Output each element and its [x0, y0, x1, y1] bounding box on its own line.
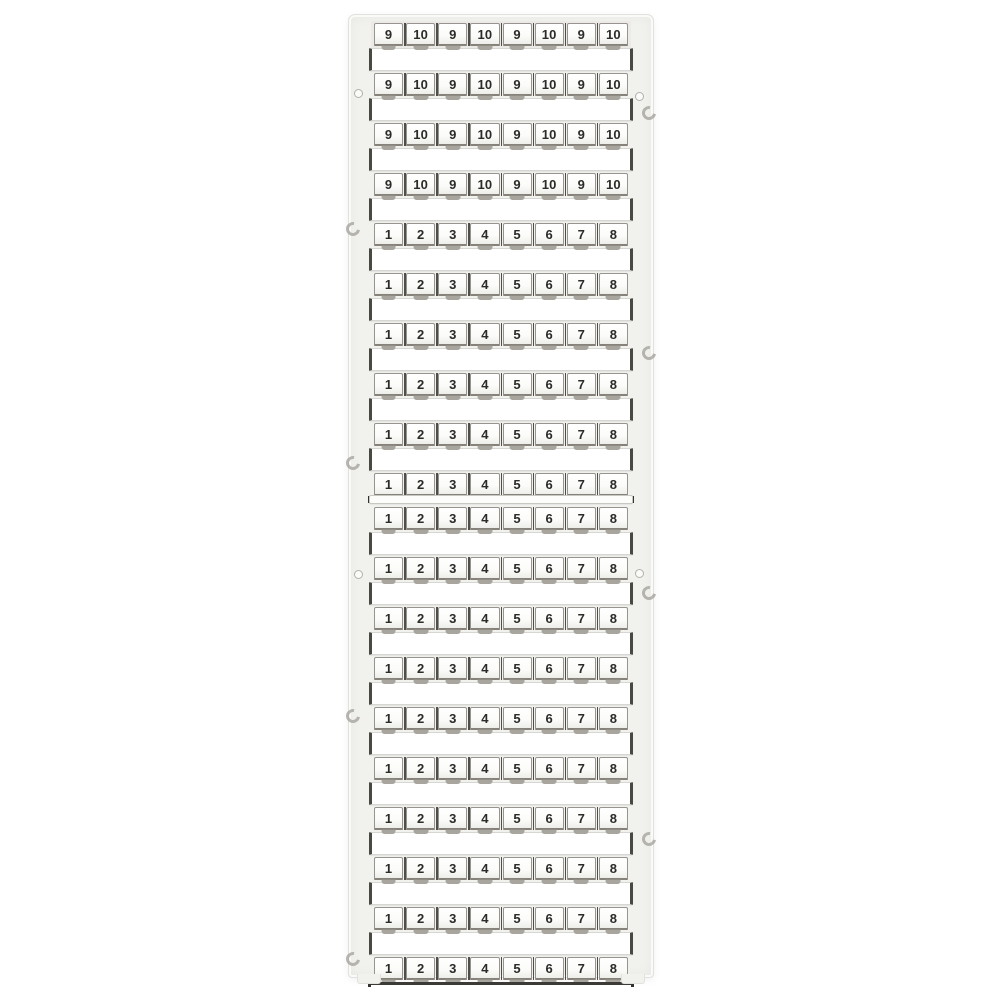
marker-tag: 3 [438, 857, 467, 880]
marker-tag: 5 [503, 323, 532, 346]
marker-tag: 7 [567, 507, 596, 530]
marker-tag: 10 [470, 123, 499, 146]
marker-row: 12345678 [374, 323, 628, 346]
blank-strip [369, 532, 633, 555]
marker-row: 12345678 [374, 907, 628, 930]
marker-tag: 4 [470, 757, 499, 780]
marker-tag: 4 [470, 423, 499, 446]
marker-tag: 5 [503, 957, 532, 980]
marker-tag: 4 [470, 507, 499, 530]
marker-tag: 5 [503, 373, 532, 396]
marker-tag: 8 [599, 507, 628, 530]
marker-tag: 3 [438, 607, 467, 630]
panel-foot-right [621, 974, 645, 984]
marker-tag: 10 [535, 73, 564, 96]
marker-tag: 4 [470, 223, 499, 246]
marker-tag: 10 [406, 173, 435, 196]
marker-tag: 4 [470, 273, 499, 296]
marker-tag: 9 [374, 23, 403, 46]
marker-row: 910910910910 [374, 73, 628, 96]
marker-row: 12345678 [374, 607, 628, 630]
marker-tag: 7 [567, 957, 596, 980]
marker-tag: 7 [567, 323, 596, 346]
marker-tag: 2 [406, 607, 435, 630]
marker-tag: 8 [599, 423, 628, 446]
marker-tag: 3 [438, 473, 467, 496]
marker-row: 12345678 [374, 657, 628, 680]
marker-tag: 6 [535, 323, 564, 346]
marker-tag: 1 [374, 757, 403, 780]
marker-row: 12345678 [374, 373, 628, 396]
marker-tag: 8 [599, 273, 628, 296]
marker-card-bottom: 1234567812345678123456781234567812345678… [369, 495, 633, 985]
marker-panel: 9109109109109109109109109109109109109109… [348, 14, 654, 978]
marker-tag: 5 [503, 707, 532, 730]
marker-tag: 7 [567, 707, 596, 730]
marker-row: 12345678 [374, 807, 628, 830]
marker-tag: 3 [438, 323, 467, 346]
blank-strip [369, 398, 633, 421]
marker-tag: 2 [406, 223, 435, 246]
marker-tag: 8 [599, 857, 628, 880]
marker-row: 12345678 [374, 423, 628, 446]
clip-mark [343, 949, 362, 968]
card-edge-line [369, 982, 633, 985]
marker-tag: 9 [503, 73, 532, 96]
blank-strip [369, 148, 633, 171]
marker-tag: 1 [374, 473, 403, 496]
blank-strip [369, 448, 633, 471]
marker-tag: 7 [567, 657, 596, 680]
marker-card-top: 9109109109109109109109109109109109109109… [369, 23, 633, 501]
marker-row: 12345678 [374, 957, 628, 980]
marker-tag: 10 [470, 73, 499, 96]
marker-tag: 2 [406, 473, 435, 496]
marker-tag: 8 [599, 907, 628, 930]
marker-tag: 2 [406, 757, 435, 780]
clip-mark [639, 583, 658, 602]
marker-tag: 10 [470, 23, 499, 46]
marker-tag: 7 [567, 373, 596, 396]
marker-tag: 1 [374, 857, 403, 880]
marker-tag: 10 [406, 123, 435, 146]
marker-tag: 2 [406, 707, 435, 730]
marker-tag: 7 [567, 757, 596, 780]
marker-tag: 1 [374, 373, 403, 396]
marker-tag: 5 [503, 907, 532, 930]
marker-tag: 2 [406, 907, 435, 930]
marker-tag: 5 [503, 473, 532, 496]
marker-tag: 5 [503, 507, 532, 530]
marker-tag: 8 [599, 557, 628, 580]
marker-tag: 10 [535, 123, 564, 146]
marker-tag: 6 [535, 607, 564, 630]
marker-tag: 10 [599, 123, 628, 146]
marker-tag: 6 [535, 223, 564, 246]
marker-tag: 3 [438, 507, 467, 530]
marker-tag: 8 [599, 807, 628, 830]
marker-tag: 8 [599, 757, 628, 780]
marker-row: 12345678 [374, 507, 628, 530]
clip-mark [639, 829, 658, 848]
marker-tag: 1 [374, 807, 403, 830]
marker-tag: 8 [599, 707, 628, 730]
marker-tag: 9 [374, 123, 403, 146]
marker-tag: 5 [503, 657, 532, 680]
marker-tag: 9 [374, 173, 403, 196]
marker-tag: 8 [599, 373, 628, 396]
blank-strip [369, 882, 633, 905]
marker-row: 12345678 [374, 857, 628, 880]
mounting-hole [635, 569, 644, 578]
blank-strip [369, 248, 633, 271]
marker-row: 910910910910 [374, 173, 628, 196]
marker-tag: 3 [438, 423, 467, 446]
marker-tag: 2 [406, 323, 435, 346]
marker-tag: 6 [535, 707, 564, 730]
marker-tag: 3 [438, 757, 467, 780]
marker-tag: 6 [535, 807, 564, 830]
marker-tag: 9 [374, 73, 403, 96]
blank-strip [369, 48, 633, 71]
marker-tag: 4 [470, 857, 499, 880]
marker-tag: 4 [470, 473, 499, 496]
marker-tag: 3 [438, 957, 467, 980]
marker-tag: 7 [567, 557, 596, 580]
marker-tag: 9 [567, 123, 596, 146]
mounting-hole [354, 570, 363, 579]
marker-tag: 5 [503, 557, 532, 580]
marker-tag: 6 [535, 557, 564, 580]
blank-strip [369, 832, 633, 855]
marker-row: 12345678 [374, 273, 628, 296]
marker-tag: 4 [470, 607, 499, 630]
marker-tag: 4 [470, 323, 499, 346]
marker-row: 12345678 [374, 223, 628, 246]
marker-tag: 4 [470, 807, 499, 830]
marker-tag: 3 [438, 373, 467, 396]
marker-tag: 2 [406, 957, 435, 980]
marker-tag: 5 [503, 757, 532, 780]
marker-tag: 3 [438, 907, 467, 930]
marker-tag: 1 [374, 423, 403, 446]
marker-row: 12345678 [374, 707, 628, 730]
marker-tag: 6 [535, 907, 564, 930]
marker-tag: 4 [470, 907, 499, 930]
marker-tag: 9 [503, 173, 532, 196]
blank-strip [369, 632, 633, 655]
clip-mark [639, 103, 658, 122]
marker-tag: 5 [503, 273, 532, 296]
clip-mark [343, 219, 362, 238]
marker-tag: 3 [438, 807, 467, 830]
marker-tag: 3 [438, 273, 467, 296]
marker-tag: 10 [599, 23, 628, 46]
marker-tag: 6 [535, 657, 564, 680]
marker-tag: 8 [599, 657, 628, 680]
marker-tag: 1 [374, 607, 403, 630]
marker-tag: 10 [535, 173, 564, 196]
marker-tag: 5 [503, 807, 532, 830]
clip-mark [639, 343, 658, 362]
marker-tag: 3 [438, 557, 467, 580]
mounting-hole [354, 89, 363, 98]
marker-tag: 6 [535, 373, 564, 396]
marker-tag: 8 [599, 607, 628, 630]
marker-tag: 2 [406, 373, 435, 396]
marker-tag: 1 [374, 323, 403, 346]
marker-tag: 7 [567, 423, 596, 446]
marker-tag: 7 [567, 223, 596, 246]
marker-tag: 2 [406, 507, 435, 530]
marker-tag: 9 [438, 173, 467, 196]
marker-tag: 4 [470, 657, 499, 680]
marker-tag: 9 [503, 123, 532, 146]
marker-tag: 2 [406, 657, 435, 680]
card-top-edge [369, 495, 633, 504]
marker-tag: 6 [535, 473, 564, 496]
marker-tag: 7 [567, 607, 596, 630]
marker-tag: 7 [567, 907, 596, 930]
marker-tag: 9 [567, 23, 596, 46]
marker-tag: 4 [470, 707, 499, 730]
marker-tag: 9 [438, 73, 467, 96]
marker-tag: 3 [438, 223, 467, 246]
marker-tag: 7 [567, 857, 596, 880]
panel-foot-left [357, 974, 381, 984]
marker-tag: 1 [374, 507, 403, 530]
marker-tag: 10 [599, 173, 628, 196]
marker-tag: 2 [406, 857, 435, 880]
marker-tag: 6 [535, 757, 564, 780]
marker-tag: 2 [406, 807, 435, 830]
marker-row: 910910910910 [374, 123, 628, 146]
blank-strip [369, 348, 633, 371]
blank-strip [369, 198, 633, 221]
marker-tag: 6 [535, 423, 564, 446]
marker-tag: 10 [470, 173, 499, 196]
marker-tag: 9 [438, 123, 467, 146]
marker-tag: 4 [470, 957, 499, 980]
marker-tag: 9 [567, 173, 596, 196]
clip-mark [343, 706, 362, 725]
marker-row: 12345678 [374, 473, 628, 496]
marker-tag: 4 [470, 373, 499, 396]
blank-strip [369, 932, 633, 955]
marker-tag: 7 [567, 473, 596, 496]
blank-strip [369, 298, 633, 321]
blank-strip [369, 98, 633, 121]
marker-tag: 1 [374, 707, 403, 730]
marker-tag: 5 [503, 423, 532, 446]
marker-tag: 6 [535, 957, 564, 980]
marker-row: 12345678 [374, 557, 628, 580]
marker-tag: 5 [503, 607, 532, 630]
marker-tag: 5 [503, 857, 532, 880]
blank-strip [369, 682, 633, 705]
marker-tag: 10 [599, 73, 628, 96]
marker-tag: 3 [438, 707, 467, 730]
marker-row: 910910910910 [374, 23, 628, 46]
marker-tag: 1 [374, 273, 403, 296]
marker-tag: 9 [438, 23, 467, 46]
marker-tag: 2 [406, 273, 435, 296]
product-photo: 9109109109109109109109109109109109109109… [0, 0, 1000, 1000]
marker-tag: 1 [374, 557, 403, 580]
marker-tag: 10 [406, 23, 435, 46]
marker-tag: 7 [567, 807, 596, 830]
mounting-hole [635, 92, 644, 101]
marker-tag: 9 [503, 23, 532, 46]
marker-tag: 1 [374, 657, 403, 680]
marker-tag: 10 [406, 73, 435, 96]
marker-tag: 7 [567, 273, 596, 296]
marker-tag: 10 [535, 23, 564, 46]
marker-tag: 6 [535, 507, 564, 530]
marker-tag: 6 [535, 857, 564, 880]
marker-tag: 3 [438, 657, 467, 680]
marker-row: 12345678 [374, 757, 628, 780]
blank-strip [369, 582, 633, 605]
marker-tag: 8 [599, 323, 628, 346]
marker-tag: 1 [374, 907, 403, 930]
marker-tag: 8 [599, 223, 628, 246]
marker-tag: 9 [567, 73, 596, 96]
marker-tag: 8 [599, 473, 628, 496]
marker-tag: 4 [470, 557, 499, 580]
marker-tag: 6 [535, 273, 564, 296]
marker-tag: 1 [374, 223, 403, 246]
marker-tag: 2 [406, 423, 435, 446]
marker-tag: 5 [503, 223, 532, 246]
blank-strip [369, 782, 633, 805]
marker-tag: 2 [406, 557, 435, 580]
clip-mark [343, 453, 362, 472]
blank-strip [369, 732, 633, 755]
